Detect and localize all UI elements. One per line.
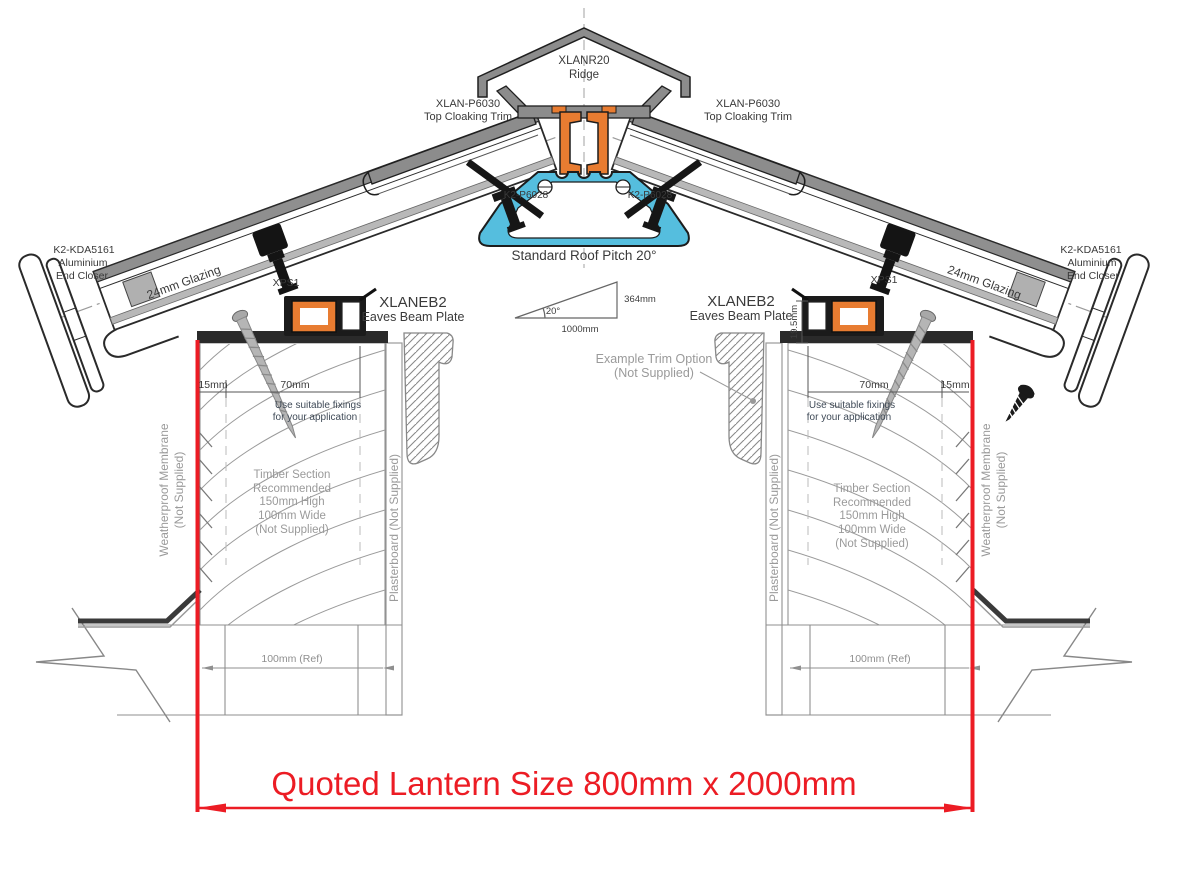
cloaking-trim-left-code: XLAN-P6030: [436, 98, 500, 110]
beam-height-dim-label: 19.5mm: [789, 305, 800, 339]
trim-option-line2: (Not Supplied): [614, 366, 694, 380]
example-trim-right: [715, 333, 764, 464]
xps-label-right: XPS1: [871, 274, 898, 286]
svg-text:Timber Section: Timber Section: [834, 483, 911, 495]
trim-option-line1: Example Trim Option: [596, 352, 713, 366]
pitch-angle-label: 20°: [546, 306, 561, 317]
fixzone-dim-right: 70mm: [859, 379, 888, 391]
eaves-beam-right-code: XLANEB2: [707, 293, 775, 310]
drawing-canvas: XLANR20 Ridge XLAN-P6030 Top Cloaking Tr…: [0, 0, 1184, 872]
svg-text:150mm High: 150mm High: [259, 496, 324, 508]
end-closer-right-line3: End Closer: [1067, 270, 1119, 282]
end-closer-left-line2: Aluminium: [58, 257, 107, 269]
wall-ref-label-left: 100mm (Ref): [261, 653, 322, 665]
end-closer-right-code: K2-KDA5161: [1060, 244, 1121, 256]
svg-text:(Not Supplied): (Not Supplied): [835, 538, 909, 550]
svg-text:150mm High: 150mm High: [839, 510, 904, 522]
example-trim-left: [404, 333, 453, 464]
ridge-name-label: Ridge: [569, 69, 599, 81]
glazing-bar-left-code: K2-P6028: [504, 190, 549, 201]
end-closer-left-code: K2-KDA5161: [53, 244, 114, 256]
svg-text:Recommended: Recommended: [833, 497, 911, 509]
wall-section-right: [766, 608, 1132, 722]
plasterboard-label-right: Plasterboard (Not Supplied): [767, 454, 781, 602]
fixings-note-right-2: for your application: [807, 412, 892, 423]
membrane-label-left-1: Weatherproof Membrane: [157, 423, 171, 557]
fixzone-dim-left: 70mm: [280, 379, 309, 391]
eaves-beam-right: [780, 289, 973, 343]
svg-text:100mm Wide: 100mm Wide: [258, 510, 326, 522]
svg-text:100mm Wide: 100mm Wide: [838, 524, 906, 536]
pitch-run-label: 1000mm: [562, 324, 599, 335]
svg-text:Timber Section: Timber Section: [254, 469, 331, 481]
glazing-bar-right-code: K2-P6028: [628, 190, 673, 201]
eaves-beam-left: [197, 289, 388, 343]
fixings-note-left-1: Use suitable fixings: [275, 400, 361, 411]
wall-ref-label-right: 100mm (Ref): [849, 653, 910, 665]
membrane-label-right-1: Weatherproof Membrane: [979, 423, 993, 557]
cloaking-trim-right-code: XLAN-P6030: [716, 98, 780, 110]
membrane-flap-right: [973, 590, 1090, 627]
roof-pitch-label: Standard Roof Pitch 20°: [512, 248, 657, 263]
timber-note-left: Timber Section Recommended 150mm High 10…: [253, 469, 331, 536]
plasterboard-label-left: Plasterboard (Not Supplied): [387, 454, 401, 602]
wall-section-left: [36, 608, 402, 722]
screw-icon: [999, 382, 1037, 427]
eaves-beam-left-name: Eaves Beam Plate: [362, 310, 465, 324]
svg-text:(Not Supplied): (Not Supplied): [255, 524, 329, 536]
svg-text:Recommended: Recommended: [253, 483, 331, 495]
cloaking-trim-right-name: Top Cloaking Trim: [704, 111, 792, 123]
fixings-note-left-2: for your application: [273, 412, 358, 423]
membrane-label-left-2: (Not Supplied): [172, 452, 186, 529]
ridge-code-label: XLANR20: [558, 55, 609, 67]
eaves-beam-right-name: Eaves Beam Plate: [690, 309, 793, 323]
fixings-note-right-1: Use suitable fixings: [809, 400, 895, 411]
lantern-section-drawing: XLANR20 Ridge XLAN-P6030 Top Cloaking Tr…: [0, 0, 1184, 872]
edge-dim-right: 15mm: [940, 379, 969, 391]
end-closer-left-line3: End Closer: [56, 270, 108, 282]
pitch-rise-label: 364mm: [624, 294, 656, 305]
timber-note-right: Timber Section Recommended 150mm High 10…: [833, 483, 911, 550]
edge-dim-left: 15mm: [198, 379, 227, 391]
xps-label-left: XPS1: [273, 277, 300, 289]
membrane-flap-left: [78, 590, 200, 627]
end-closer-right-line2: Aluminium: [1067, 257, 1116, 269]
pitch-triangle: [515, 282, 617, 318]
eaves-beam-left-code: XLANEB2: [379, 294, 447, 311]
cloaking-trim-left-name: Top Cloaking Trim: [424, 111, 512, 123]
quoted-size-label: Quoted Lantern Size 800mm x 2000mm: [271, 765, 856, 802]
membrane-label-right-2: (Not Supplied): [994, 452, 1008, 529]
